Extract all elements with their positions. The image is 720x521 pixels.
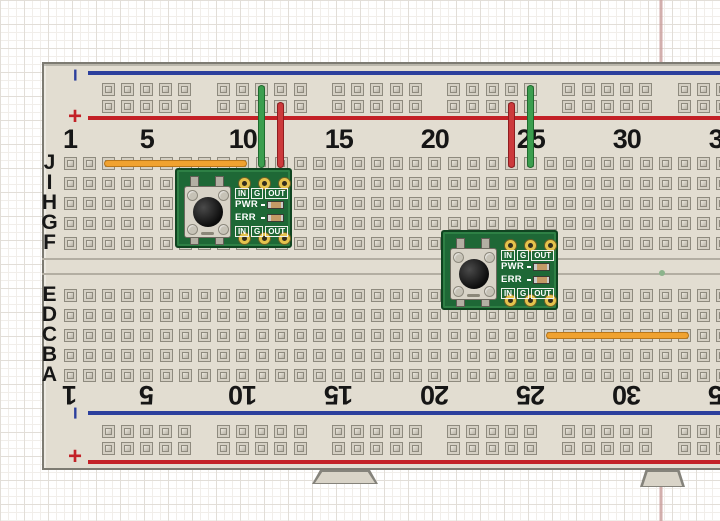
breadboard-hole (409, 197, 422, 210)
breadboard-hole (64, 349, 77, 362)
breadboard-hole (371, 289, 384, 302)
pcb-label: OUT (265, 226, 288, 237)
breadboard-hole (179, 309, 192, 322)
breadboard-hole (697, 197, 710, 210)
breadboard-hole (640, 369, 653, 382)
pcb-io-labels-top: INGOUT (235, 188, 288, 199)
button-breakout-2[interactable]: INGOUTINGOUTPWRERR (441, 230, 558, 310)
breadboard-hole (332, 237, 345, 250)
breadboard-hole (544, 309, 557, 322)
breadboard-hole (563, 237, 576, 250)
breadboard-hole (217, 100, 230, 113)
breadboard-hole (409, 369, 422, 382)
breadboard-hole (370, 442, 383, 455)
breadboard-hole (352, 197, 365, 210)
breadboard-hole (505, 217, 518, 230)
pcb-io-labels-top: INGOUT (501, 250, 554, 261)
breadboard-hole (370, 425, 383, 438)
pcb-label: OUT (531, 288, 554, 299)
breadboard-hole (140, 217, 153, 230)
breadboard-hole (659, 289, 672, 302)
breadboard-hole (371, 349, 384, 362)
breadboard-hole (620, 197, 633, 210)
breadboard-hole (160, 329, 173, 342)
breadboard-hole (466, 83, 479, 96)
breadboard-hole (352, 369, 365, 382)
red-wire-right[interactable] (508, 102, 515, 168)
breadboard-hole (121, 369, 134, 382)
button-corner-pin (484, 286, 495, 297)
column-number-bottom: 5 (140, 381, 154, 408)
breadboard-hole (352, 349, 365, 362)
breadboard-hole (275, 309, 288, 322)
column-number-top: 10 (229, 126, 257, 153)
breadboard-hole (601, 309, 614, 322)
breadboard-hole (640, 289, 653, 302)
breadboard-hole (274, 425, 287, 438)
breadboard-hole (275, 329, 288, 342)
breadboard-hole (524, 217, 537, 230)
breadboard-hole (179, 329, 192, 342)
breadboard-hole (294, 197, 307, 210)
breadboard-hole (659, 197, 672, 210)
breadboard-hole (716, 349, 720, 362)
breadboard-hole (601, 349, 614, 362)
green-wire-right[interactable] (527, 85, 534, 168)
column-number-top: 1 (63, 126, 77, 153)
breadboard-hole (332, 425, 345, 438)
led-dash (527, 266, 531, 268)
breadboard-hole (486, 100, 499, 113)
breadboard-hole (294, 157, 307, 170)
breadboard-hole (467, 157, 480, 170)
breadboard-hole (486, 177, 499, 190)
breadboard-hole (236, 83, 249, 96)
breadboard-hole (64, 177, 77, 190)
pcb-label: IN (501, 288, 515, 299)
breadboard-hole (390, 329, 403, 342)
breadboard-hole (716, 442, 720, 455)
breadboard-hole (332, 217, 345, 230)
breadboard-hole (716, 177, 720, 190)
breadboard-hole (160, 237, 173, 250)
breadboard-hole (332, 177, 345, 190)
green-wire-left[interactable] (258, 85, 265, 168)
breadboard-hole (275, 289, 288, 302)
breadboard-hole (582, 177, 595, 190)
breadboard-hole (102, 177, 115, 190)
breadboard-hole (697, 217, 710, 230)
breadboard-hole (255, 425, 268, 438)
breadboard-hole (121, 289, 134, 302)
breadboard-hole (640, 197, 653, 210)
column-number-bottom: 15 (325, 381, 353, 408)
breadboard-hole (524, 442, 537, 455)
breadboard-hole (562, 100, 575, 113)
breadboard-hole (582, 83, 595, 96)
breadboard-hole (102, 329, 115, 342)
breadboard-hole (428, 177, 441, 190)
breadboard-hole (563, 349, 576, 362)
column-number-bottom: 20 (421, 381, 449, 408)
breadboard-hole (371, 309, 384, 322)
breadboard-hole (179, 349, 192, 362)
breadboard-hole (486, 329, 499, 342)
breadboard-hole (294, 349, 307, 362)
breadboard-hole (121, 425, 134, 438)
pcb-pwr-label: PWR (501, 262, 524, 272)
breadboard-hole (390, 177, 403, 190)
breadboard-hole (352, 309, 365, 322)
breadboard-hole (716, 329, 720, 342)
button-cap[interactable] (459, 259, 489, 289)
breadboard-hole (256, 309, 269, 322)
breadboard-hole (371, 217, 384, 230)
breadboard-hole (659, 177, 672, 190)
tactile-button[interactable] (450, 248, 497, 300)
center-channel-line (42, 273, 720, 275)
breadboard-hole (448, 177, 461, 190)
breadboard-hole (313, 197, 326, 210)
breadboard-hole (466, 425, 479, 438)
breadboard-hole (678, 237, 691, 250)
breadboard-hole (563, 369, 576, 382)
breadboard-hole (601, 442, 614, 455)
breadboard-hole (409, 237, 422, 250)
row-label-A: A (40, 364, 59, 386)
breadboard-hole (256, 369, 269, 382)
breadboard-hole (524, 425, 537, 438)
breadboard-hole (505, 369, 518, 382)
column-number-bottom: 35 (709, 381, 720, 408)
breadboard-hole (313, 217, 326, 230)
breadboard-hole (601, 425, 614, 438)
breadboard-hole (390, 425, 403, 438)
breadboard-hole (562, 442, 575, 455)
breadboard-foot (312, 470, 378, 484)
breadboard-hole (409, 217, 422, 230)
breadboard-hole (294, 329, 307, 342)
breadboard-hole (448, 329, 461, 342)
red-wire-left[interactable] (277, 102, 284, 168)
pcb-io-labels-bottom: INGOUT (235, 226, 288, 237)
breadboard-hole (370, 100, 383, 113)
breadboard-hole (447, 442, 460, 455)
breadboard-hole (140, 425, 153, 438)
breadboard-hole (428, 369, 441, 382)
breadboard-hole (448, 217, 461, 230)
breadboard-hole (332, 349, 345, 362)
breadboard-hole (313, 289, 326, 302)
breadboard-hole (620, 425, 633, 438)
pcb-label: G (251, 188, 263, 199)
breadboard-hole (102, 83, 115, 96)
breadboard-hole (236, 425, 249, 438)
breadboard-hole (352, 217, 365, 230)
breadboard-hole (236, 309, 249, 322)
breadboard-hole (121, 100, 134, 113)
breadboard-hole (544, 369, 557, 382)
breadboard-hole (83, 237, 96, 250)
breadboard-hole (467, 369, 480, 382)
breadboard-hole (390, 309, 403, 322)
pcb-label: IN (235, 226, 249, 237)
breadboard-hole (121, 83, 134, 96)
orange-jumper-top[interactable] (104, 160, 247, 167)
breadboard-hole (352, 237, 365, 250)
breadboard-hole (160, 289, 173, 302)
breadboard-hole (236, 349, 249, 362)
breadboard-hole (697, 349, 710, 362)
breadboard-hole (64, 329, 77, 342)
breadboard-hole (313, 309, 326, 322)
breadboard-hole (198, 309, 211, 322)
breadboard-hole (102, 309, 115, 322)
breadboard-hole (544, 349, 557, 362)
breadboard-hole (467, 217, 480, 230)
breadboard-hole (601, 177, 614, 190)
breadboard-hole (140, 177, 153, 190)
column-number-top: 35 (709, 126, 720, 153)
breadboard-hole (582, 100, 595, 113)
pcb-label: OUT (265, 188, 288, 199)
err-led (267, 214, 284, 222)
breadboard-hole (275, 369, 288, 382)
breadboard-hole (217, 329, 230, 342)
breadboard-hole (64, 197, 77, 210)
breadboard-hole (217, 349, 230, 362)
pcb-label: IN (235, 188, 249, 199)
breadboard-hole (332, 83, 345, 96)
breadboard-hole (428, 329, 441, 342)
breadboard-hole (236, 100, 249, 113)
breadboard-hole (620, 177, 633, 190)
breadboard-hole (486, 369, 499, 382)
breadboard-hole (294, 100, 307, 113)
breadboard-hole (102, 289, 115, 302)
breadboard-hole (140, 329, 153, 342)
breadboard-hole (563, 197, 576, 210)
breadboard-hole (390, 369, 403, 382)
breadboard-hole (390, 157, 403, 170)
breadboard-hole (370, 83, 383, 96)
breadboard-hole (332, 329, 345, 342)
breadboard-hole (121, 309, 134, 322)
breadboard-hole (582, 197, 595, 210)
column-number-bottom: 25 (517, 381, 545, 408)
breadboard-hole (217, 309, 230, 322)
breadboard-hole (313, 329, 326, 342)
breadboard-hole (102, 237, 115, 250)
breadboard-hole (486, 425, 499, 438)
breadboard-hole (620, 217, 633, 230)
breadboard-hole (409, 289, 422, 302)
breadboard-hole (294, 369, 307, 382)
breadboard-hole (160, 177, 173, 190)
pcb-label: G (517, 288, 529, 299)
button-corner-pin (187, 190, 198, 201)
breadboard-hole (332, 157, 345, 170)
breadboard-hole (121, 197, 134, 210)
breadboard-hole (486, 349, 499, 362)
breadboard-hole (678, 289, 691, 302)
breadboard-hole (582, 217, 595, 230)
breadboard-hole (409, 425, 422, 438)
rail-plus-label-bottom: + (61, 444, 89, 470)
breadboard-hole (659, 349, 672, 362)
breadboard-hole (620, 309, 633, 322)
breadboard-hole (83, 197, 96, 210)
breadboard-hole (102, 425, 115, 438)
breadboard-hole (178, 83, 191, 96)
led-dash (527, 279, 531, 281)
breadboard-hole (294, 425, 307, 438)
breadboard-hole (620, 369, 633, 382)
breadboard-hole (160, 309, 173, 322)
tactile-button[interactable] (184, 186, 231, 238)
breadboard-hole (409, 157, 422, 170)
breadboard-hole (505, 425, 518, 438)
pwr-led (267, 201, 284, 209)
breadboard-hole (428, 197, 441, 210)
breadboard-hole (486, 309, 499, 322)
breadboard-hole (140, 369, 153, 382)
breadboard-hole (121, 217, 134, 230)
breadboard-hole (121, 329, 134, 342)
breadboard-hole (159, 83, 172, 96)
breadboard-hole (121, 442, 134, 455)
breadboard-hole (505, 349, 518, 362)
breadboard-hole (428, 289, 441, 302)
breadboard-hole (640, 177, 653, 190)
breadboard-hole (716, 425, 720, 438)
breadboard-hole (352, 177, 365, 190)
breadboard-hole (160, 197, 173, 210)
breadboard-hole (524, 329, 537, 342)
breadboard-hole (140, 237, 153, 250)
breadboard-hole (486, 83, 499, 96)
button-corner-pin (484, 252, 495, 263)
breadboard-hole (332, 442, 345, 455)
breadboard-hole (313, 369, 326, 382)
breadboard-hole (716, 369, 720, 382)
pcb-io-labels-bottom: INGOUT (501, 288, 554, 299)
breadboard-hole (83, 329, 96, 342)
breadboard-hole (217, 442, 230, 455)
breadboard-hole (678, 197, 691, 210)
breadboard-hole (409, 329, 422, 342)
column-number-top: 15 (325, 126, 353, 153)
breadboard-hole (601, 237, 614, 250)
breadboard-hole (64, 237, 77, 250)
breadboard-hole (640, 349, 653, 362)
breadboard-hole (274, 83, 287, 96)
breadboard-hole (505, 197, 518, 210)
breadboard-hole (659, 217, 672, 230)
button-cap[interactable] (193, 197, 223, 227)
breadboard-hole (486, 442, 499, 455)
breadboard-hole (716, 100, 720, 113)
breadboard-hole (64, 217, 77, 230)
breadboard-hole (448, 197, 461, 210)
power-rail-negative-bottom (88, 411, 720, 415)
breadboard-hole (121, 177, 134, 190)
breadboard-hole (524, 349, 537, 362)
breadboard-hole (697, 289, 710, 302)
breadboard-hole (390, 349, 403, 362)
breadboard-hole (83, 289, 96, 302)
breadboard-hole (159, 442, 172, 455)
breadboard-hole (601, 83, 614, 96)
breadboard-hole (601, 289, 614, 302)
button-corner-pin (453, 252, 464, 263)
breadboard-hole (140, 100, 153, 113)
breadboard-hole (178, 100, 191, 113)
breadboard-hole (140, 309, 153, 322)
breadboard-hole (467, 197, 480, 210)
row-label-F: F (40, 232, 59, 254)
breadboard-hole (620, 100, 633, 113)
breadboard-hole (352, 329, 365, 342)
button-corner-pin (187, 224, 198, 235)
power-rail-positive-bottom (88, 460, 720, 464)
breadboard-hole (601, 157, 614, 170)
breadboard-hole (313, 177, 326, 190)
breadboard-hole (64, 309, 77, 322)
column-number-bottom: 10 (229, 381, 257, 408)
breadboard-hole (601, 197, 614, 210)
breadboard-hole (448, 157, 461, 170)
breadboard-hole (447, 100, 460, 113)
breadboard-hole (274, 442, 287, 455)
breadboard-hole (294, 442, 307, 455)
breadboard-hole (467, 349, 480, 362)
breadboard-hole (716, 217, 720, 230)
breadboard-hole (390, 442, 403, 455)
breadboard-hole (466, 100, 479, 113)
breadboard-hole (544, 197, 557, 210)
breadboard-hole (102, 217, 115, 230)
breadboard-hole (236, 289, 249, 302)
breadboard-hole (275, 349, 288, 362)
breadboard-hole (524, 309, 537, 322)
breadboard-hole (332, 309, 345, 322)
button-breakout-1[interactable]: INGOUTINGOUTPWRERR (175, 168, 292, 248)
breadboard-hole (332, 100, 345, 113)
breadboard-hole (716, 157, 720, 170)
orange-jumper-bottom[interactable] (546, 332, 689, 339)
breadboard-hole (178, 442, 191, 455)
breadboard-hole (236, 329, 249, 342)
pcb-label: IN (501, 250, 515, 261)
pcb-err-label: ERR (501, 275, 522, 285)
breadboard-hole (563, 309, 576, 322)
breadboard-hole (620, 349, 633, 362)
breadboard-hole (562, 425, 575, 438)
breadboard-hole (255, 442, 268, 455)
pwr-led (533, 263, 550, 271)
breadboard-hole (409, 177, 422, 190)
breadboard-hole (544, 217, 557, 230)
breadboard-hole (256, 329, 269, 342)
breadboard-hole (371, 369, 384, 382)
breadboard-hole (371, 197, 384, 210)
breadboard-hole (121, 349, 134, 362)
breadboard-hole (313, 237, 326, 250)
breadboard-hole (294, 83, 307, 96)
breadboard-hole (697, 83, 710, 96)
breadboard-hole (716, 197, 720, 210)
